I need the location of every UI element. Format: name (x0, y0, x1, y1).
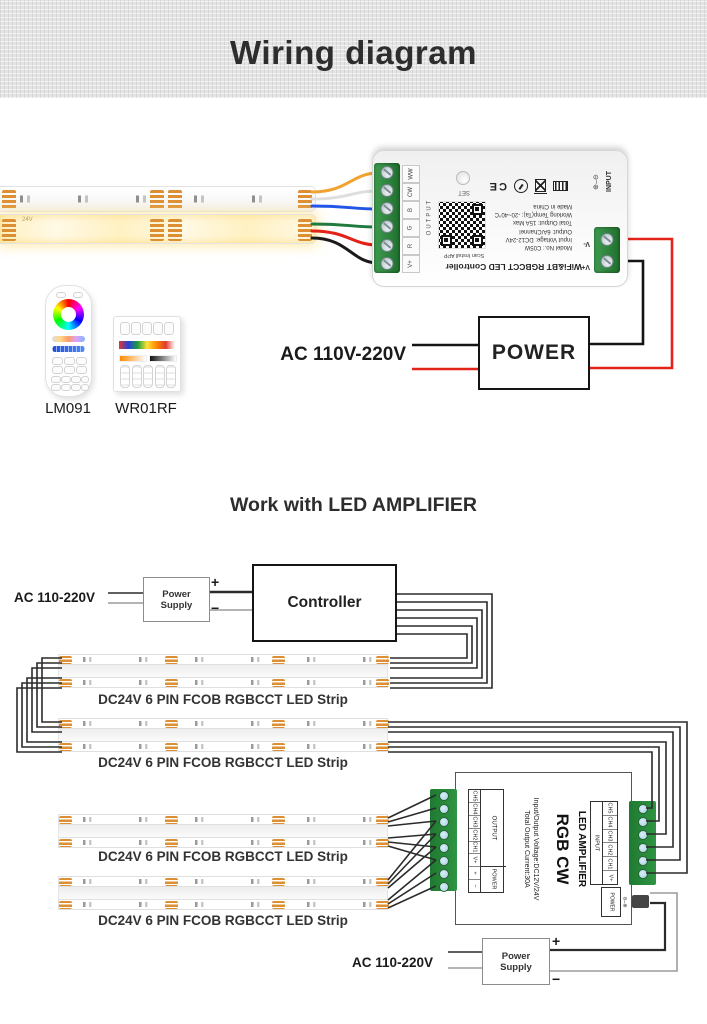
page: Wiring diagram 24V (0, 0, 707, 1024)
zone-slider[interactable] (120, 365, 130, 388)
certification-icons: CE (488, 179, 568, 193)
amp-output-wire (388, 821, 436, 826)
led-strip-2 (58, 718, 388, 754)
controller-box-label: Controller (287, 594, 361, 612)
terminal-label: CH3 (603, 830, 617, 844)
amp-output-wire (388, 846, 436, 860)
solder-pad (2, 219, 16, 241)
terminal-screw (601, 233, 614, 246)
solder-pad (59, 839, 72, 847)
power-supply-box-1: Power Supply (143, 577, 210, 622)
terminal-screw (381, 166, 394, 179)
wire-ww-yellow (312, 173, 378, 192)
terminal-label: CW (402, 183, 420, 201)
terminal-label: V+ (402, 255, 420, 273)
amplifier-type: LED AMPLIFIER (575, 774, 589, 924)
rohs-icon (514, 179, 528, 193)
output-group-label: OUTPUT (481, 790, 506, 867)
solder-pad (59, 679, 72, 687)
solder-pad (165, 656, 178, 664)
page-title: Wiring diagram (0, 0, 707, 72)
strip-body (58, 825, 388, 837)
terminal-label: CH2 (603, 843, 617, 857)
barcode-icon (553, 181, 568, 191)
remote-button[interactable] (64, 366, 75, 374)
strip-row (58, 654, 388, 665)
power-supply-label: Power Supply (495, 951, 537, 973)
amplifier-input-labels: INPUT CH5 CH4 CH3 CH2 CH1 V+ (590, 801, 618, 885)
strip-chain-wire (17, 688, 62, 752)
strip-body (58, 665, 388, 677)
terminal-label: + (469, 867, 480, 880)
zone-button[interactable] (71, 384, 81, 391)
amp-output-wire (388, 808, 436, 822)
amplifier-specs: Input/Output Voltage:DC12V/24VTotal Outp… (520, 774, 542, 924)
scan-app-label: Scan Install APP (438, 252, 490, 258)
zone-button[interactable] (61, 384, 71, 391)
strip-label: DC24V 6 PIN FCOB RGBCCT LED Strip (58, 913, 388, 928)
remote-model-label: LM091 (33, 400, 103, 417)
terminal-hole (439, 869, 449, 879)
terminal-label: CH1 (603, 857, 617, 871)
solder-pad (376, 656, 389, 664)
controller-input-terminal-block[interactable] (594, 227, 620, 273)
strip-label: DC24V 6 PIN FCOB RGBCCT LED Strip (58, 849, 388, 864)
solder-pad (376, 901, 389, 909)
zone-button[interactable] (51, 376, 61, 383)
terminal-label: − (469, 880, 480, 892)
terminal-label: CH4 (469, 803, 480, 816)
color-wheel-center (61, 307, 76, 322)
minus-label: − (552, 971, 560, 987)
amp-output-wire (388, 886, 436, 908)
solder-pad (59, 901, 72, 909)
qr-finder (441, 235, 452, 246)
terminal-screw (381, 202, 394, 215)
terminal-hole (638, 869, 648, 879)
terminal-hole (439, 843, 449, 853)
amp-output-wire (388, 842, 436, 847)
terminal-label: V+ (469, 854, 480, 867)
controller-box: Controller (252, 564, 397, 642)
solder-pad (2, 190, 16, 210)
terminal-screw (601, 255, 614, 268)
amplifier-name: RGB CW (551, 774, 573, 924)
controller-specs: Model No.: C05W Input Voltage: DC12-24V … (488, 202, 572, 251)
solder-pad (272, 878, 285, 886)
amp-output-wire (388, 860, 436, 900)
plus-label: + (211, 574, 219, 590)
solder-pad (165, 720, 178, 728)
strip-to-controller-wires (312, 173, 378, 263)
spec-line: Model No.: C05W (488, 243, 572, 251)
wire-vplus-black (312, 238, 378, 263)
terminal-screw (381, 257, 394, 270)
amp-output-wire (388, 834, 436, 838)
terminal-label: V- (583, 240, 590, 247)
input-group-label: INPUT (591, 802, 603, 884)
solder-pad (298, 190, 312, 210)
remote-button[interactable] (76, 357, 87, 365)
power-on-button[interactable] (56, 292, 66, 298)
terminal-label: CH1 (469, 842, 480, 855)
terminal-hole (439, 856, 449, 866)
strip-row (58, 814, 388, 825)
terminal-hole (638, 817, 648, 827)
brightness-slider[interactable] (52, 346, 85, 352)
set-button[interactable] (456, 171, 470, 185)
terminal-hole (638, 804, 648, 814)
remote-button[interactable] (52, 357, 63, 365)
zone-slider[interactable] (155, 365, 165, 388)
solder-pad (272, 656, 285, 664)
terminal-label: WW (402, 165, 420, 183)
amp-output-wire (388, 795, 436, 818)
remote-lm091 (45, 285, 92, 397)
qr-finder (472, 204, 483, 215)
solder-pad (165, 901, 178, 909)
set-label: SET (452, 189, 476, 195)
terminal-label: V+ (603, 871, 617, 884)
terminal-label: CH4 (603, 816, 617, 830)
remote-button[interactable] (76, 366, 87, 374)
terminal-label: R (402, 237, 420, 255)
terminal-screw (381, 239, 394, 252)
terminal-label: G (402, 219, 420, 237)
terminal-hole (439, 830, 449, 840)
solder-pad (376, 839, 389, 847)
ac-label-top-supply: AC 110-220V (14, 590, 106, 605)
dc-barrel-plug[interactable] (632, 895, 649, 908)
wall-panel-wr01rf (113, 316, 181, 392)
led-strip-4 (58, 876, 388, 912)
amplifier-output-labels: CH5 CH4 CH3 CH2 CH1 V+ + − OUTPUT POWER (468, 789, 504, 893)
zone-button[interactable] (51, 384, 61, 391)
amp-output-wire (388, 873, 436, 904)
solder-pad (272, 720, 285, 728)
dc-jack-icon: ⊖–⊕ (621, 888, 629, 916)
power-jack-text: POWER (602, 888, 621, 916)
amplifier-power-jack-label: POWER ⊖–⊕ (601, 887, 621, 917)
amp-output-wire (388, 847, 436, 888)
spec-line: Output: 6A/Channel (488, 226, 572, 234)
color-touch-bar[interactable] (119, 341, 175, 349)
panel-button[interactable] (120, 322, 130, 335)
wire-cw-white (312, 191, 378, 199)
solder-pad (272, 679, 285, 687)
led-amplifier: CH5 CH4 CH3 CH2 CH1 V+ + − OUTPUT POWER … (455, 772, 632, 925)
strip-body (58, 729, 388, 741)
solder-pad (59, 720, 72, 728)
terminal-label: CH5 (603, 802, 617, 816)
solder-pad (165, 878, 178, 886)
terminal-label: B (402, 201, 420, 219)
amplifier-input-terminal-block[interactable] (629, 801, 656, 885)
strip-row (58, 677, 388, 688)
solder-pad (376, 743, 389, 751)
solder-pad (376, 816, 389, 824)
qr-code (438, 201, 486, 249)
solder-pad (376, 720, 389, 728)
terminal-hole (638, 856, 648, 866)
ac-voltage-label: AC 110V-220V (264, 344, 406, 366)
controller-strip-wire (390, 626, 472, 663)
strip-chain-wire (22, 683, 62, 747)
remote-button[interactable] (64, 357, 75, 365)
controller-strip-wire (390, 618, 477, 668)
panel-button[interactable] (131, 322, 141, 335)
ce-mark: CE (488, 180, 507, 192)
terminal-hole (439, 804, 449, 814)
terminal-label: CH5 (469, 790, 480, 803)
zone-button[interactable] (81, 376, 89, 383)
panel-button[interactable] (153, 322, 163, 335)
solder-pad (59, 656, 72, 664)
strip-body (58, 887, 388, 899)
led-strip-photo-cob-row: 24V (0, 214, 316, 244)
power-off-button[interactable] (73, 292, 83, 298)
solder-pad (272, 901, 285, 909)
amplifier-output-terminal-block[interactable] (430, 789, 457, 891)
dim-bar[interactable] (149, 355, 177, 362)
solder-pad (168, 219, 182, 241)
strip-label: DC24V 6 PIN FCOB RGBCCT LED Strip (58, 692, 388, 707)
power-supply-box-2: Power Supply (482, 938, 550, 985)
solder-pad (376, 878, 389, 886)
panel-button[interactable] (142, 322, 152, 335)
solder-pad (59, 816, 72, 824)
solder-pad (272, 743, 285, 751)
terminal-label: CH2 (469, 829, 480, 842)
panel-button[interactable] (164, 322, 174, 335)
color-wheel[interactable] (53, 299, 84, 330)
input-text: INPUT (604, 163, 616, 201)
section-title: Work with LED AMPLIFIER (0, 494, 707, 517)
power-group-label: POWER (481, 867, 506, 892)
wire-b-blue (312, 206, 378, 209)
zone-slider[interactable] (132, 365, 142, 388)
controller-strip-wire (390, 594, 492, 688)
zone-button[interactable] (81, 384, 89, 391)
zone-slider[interactable] (143, 365, 153, 388)
solder-pad (298, 219, 312, 241)
wifi-led-controller: V+ R G B CW WW OUTPUT V+ V- INPUT ⊕–⊖ Wi… (372, 150, 628, 287)
header-banner: Wiring diagram (0, 0, 707, 98)
zone-button[interactable] (71, 376, 81, 383)
strip-row (58, 899, 388, 910)
controller-output-terminal-block[interactable] (374, 163, 400, 273)
solder-pad (272, 816, 285, 824)
cct-slider[interactable] (52, 336, 85, 342)
solder-pad (168, 190, 182, 210)
wire-g-green (312, 224, 378, 227)
terminal-screw (381, 220, 394, 233)
qr-finder (472, 235, 483, 246)
panel-model-label: WR01RF (111, 400, 181, 417)
solder-pad (165, 816, 178, 824)
solder-pad (59, 743, 72, 751)
power-supply-label: Power Supply (156, 589, 198, 611)
strip-row (58, 876, 388, 887)
solder-pad (165, 679, 178, 687)
controller-title: WiFi&BT RGBCCT LED Controller (430, 262, 582, 272)
dc-jack-icon: ⊕–⊖ (590, 165, 602, 199)
controller-strip-wire (390, 634, 467, 658)
amp-output-wire (388, 834, 436, 884)
power-box-label: POWER (492, 341, 576, 365)
spec-line: Input Voltage: DC12-24V (488, 235, 572, 243)
plus-label: + (552, 933, 560, 949)
strip-row (58, 718, 388, 729)
led-strip-3 (58, 814, 388, 850)
led-strip-1 (58, 654, 388, 690)
spec-line: Total Output: 15A Max (488, 218, 572, 226)
output-text: OUTPUT (424, 177, 436, 257)
zone-slider[interactable] (166, 365, 176, 388)
remote-button[interactable] (52, 366, 63, 374)
strip-chain-wire (27, 678, 62, 742)
controller-strip-wire (390, 602, 487, 683)
spec-line: Working Temp(Ta): -20~40°C (488, 210, 572, 218)
minus-label: − (211, 600, 219, 616)
power-box: POWER (478, 316, 590, 390)
terminal-hole (439, 882, 449, 892)
warm-white-bar[interactable] (119, 355, 147, 362)
terminal-label: CH3 (469, 816, 480, 829)
terminal-screw (381, 184, 394, 197)
terminal-hole (439, 817, 449, 827)
strip-voltage-mark: 24V (22, 217, 33, 223)
zone-button[interactable] (61, 376, 71, 383)
terminal-hole (638, 843, 648, 853)
strip-row (58, 741, 388, 752)
wire-r-red (312, 231, 378, 245)
terminal-hole (638, 830, 648, 840)
amp-output-wire (388, 821, 436, 880)
solder-pad (150, 190, 164, 210)
led-strip-photo-top-row (0, 186, 316, 212)
terminal-hole (439, 791, 449, 801)
strip-label: DC24V 6 PIN FCOB RGBCCT LED Strip (58, 755, 388, 770)
controller-strip-wire (390, 610, 482, 678)
terminal-label: V+ (581, 263, 590, 270)
ac-label-bottom-supply: AC 110-220V (352, 955, 444, 970)
solder-pad (165, 743, 178, 751)
solder-pad (150, 219, 164, 241)
solder-pad (272, 839, 285, 847)
strip-row (58, 837, 388, 848)
solder-pad (165, 839, 178, 847)
solder-pad (376, 679, 389, 687)
spec-line: Made in China (488, 202, 572, 210)
weee-bin-icon (535, 180, 546, 193)
solder-pad (59, 878, 72, 886)
